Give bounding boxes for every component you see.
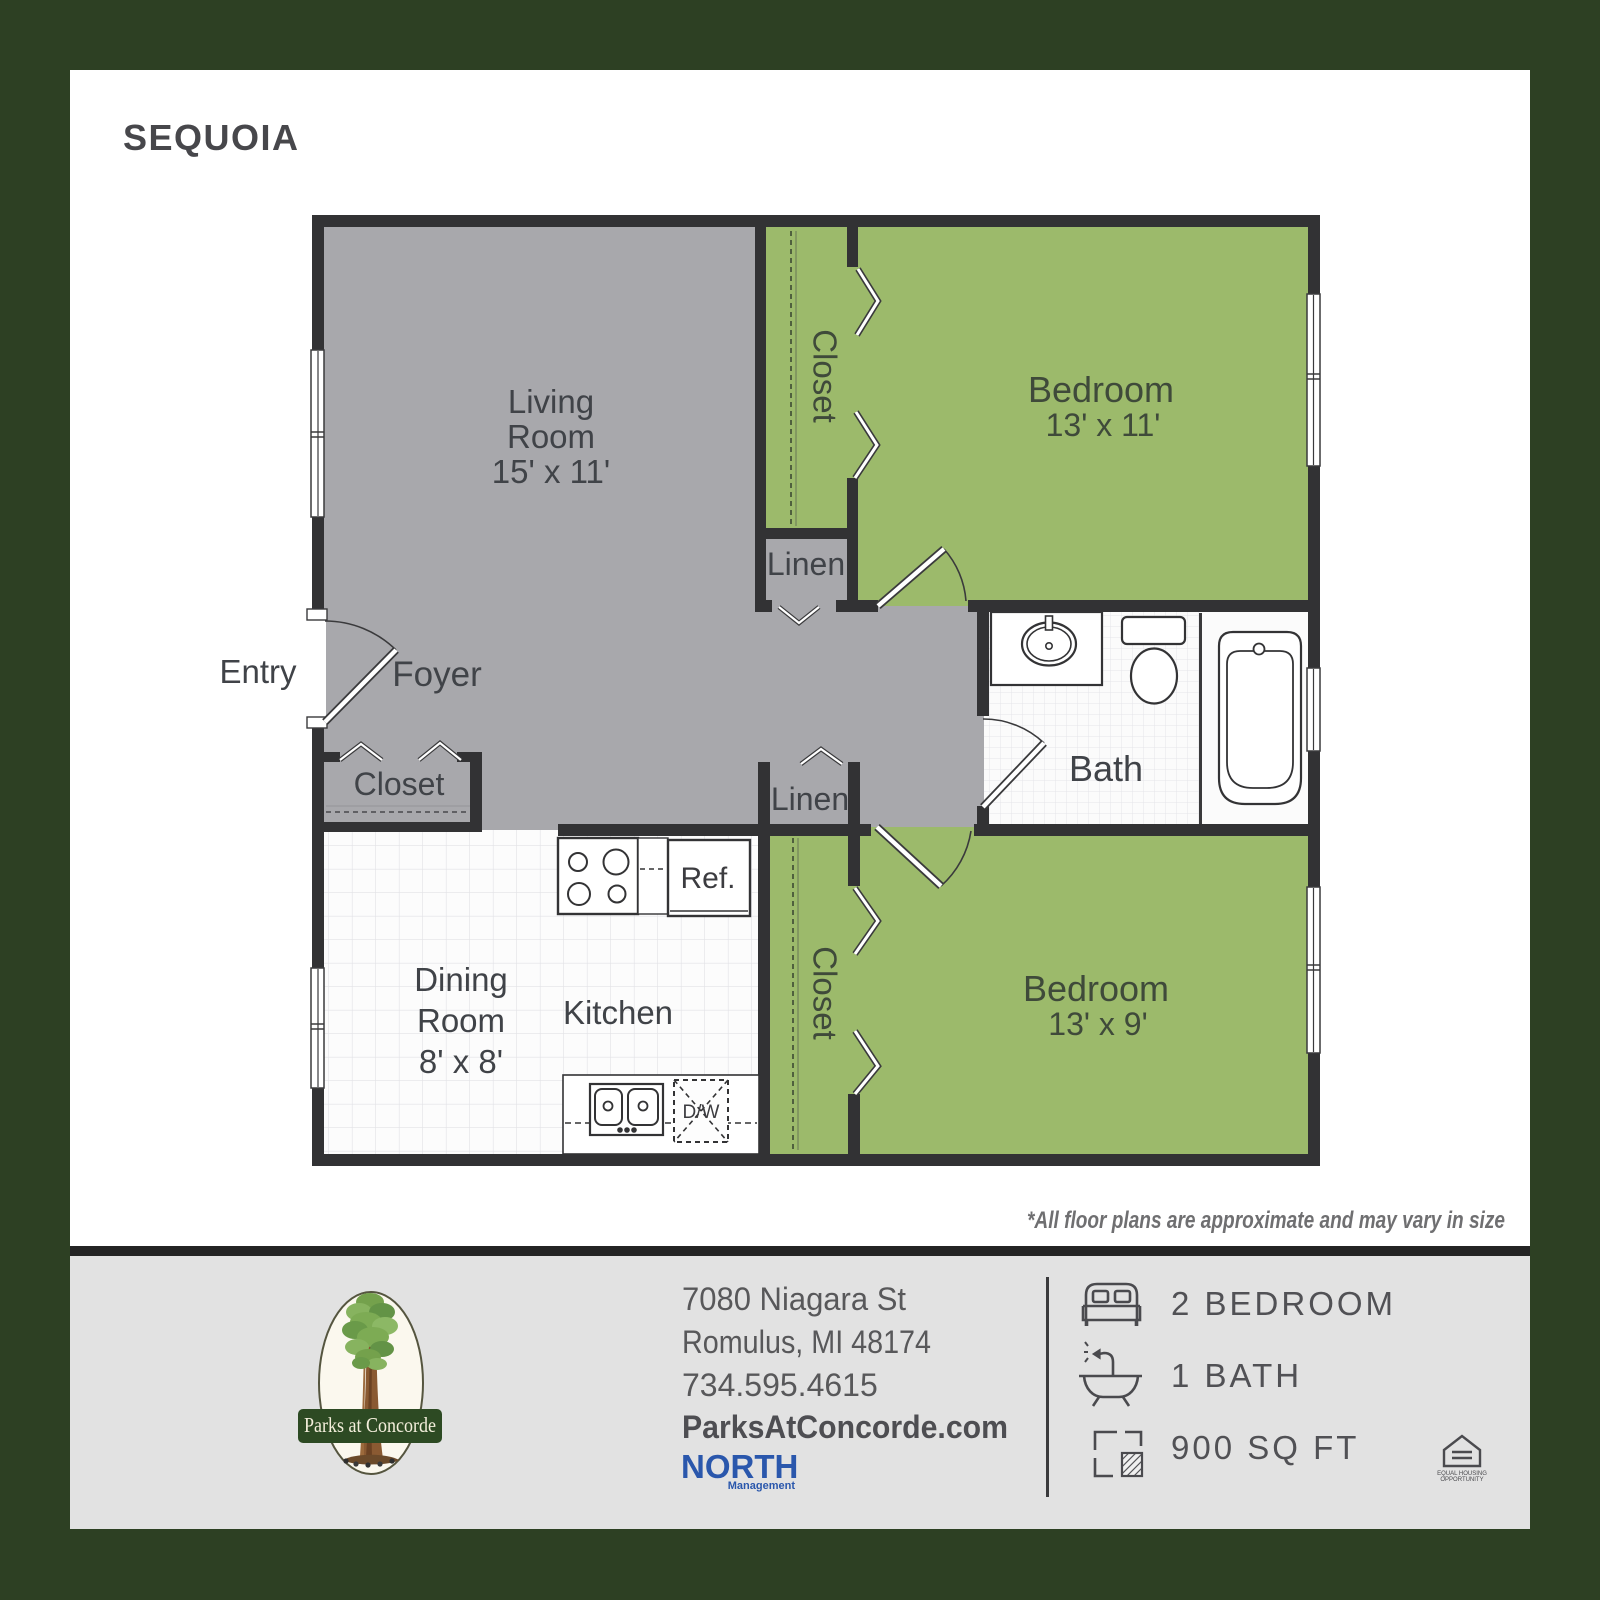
- svg-text:Ref.: Ref.: [680, 862, 735, 895]
- svg-text:2 BEDROOM: 2 BEDROOM: [1171, 1285, 1396, 1322]
- svg-text:Foyer: Foyer: [392, 655, 482, 694]
- svg-text:Kitchen: Kitchen: [563, 994, 673, 1031]
- svg-text:Linen: Linen: [771, 781, 849, 817]
- svg-text:13' x 11': 13' x 11': [1046, 407, 1161, 443]
- svg-text:Closet: Closet: [806, 329, 843, 423]
- svg-text:Closet: Closet: [354, 766, 445, 802]
- svg-text:OPPORTUNITY: OPPORTUNITY: [1440, 1477, 1483, 1483]
- svg-text:13' x 9': 13' x 9': [1048, 1006, 1147, 1042]
- svg-text:900 SQ FT: 900 SQ FT: [1171, 1429, 1359, 1466]
- svg-text:Bedroom: Bedroom: [1028, 369, 1174, 410]
- svg-text:ParksAtConcorde.com: ParksAtConcorde.com: [682, 1409, 1008, 1445]
- svg-text:Bath: Bath: [1069, 748, 1143, 789]
- svg-text:*All floor plans are approxima: *All floor plans are approximate and may…: [1027, 1207, 1505, 1234]
- svg-text:Romulus, MI 48174: Romulus, MI 48174: [682, 1324, 931, 1360]
- svg-text:7080 Niagara St: 7080 Niagara St: [682, 1281, 906, 1317]
- svg-text:Linen: Linen: [767, 546, 845, 582]
- svg-text:D/W: D/W: [683, 1102, 720, 1123]
- svg-text:Management: Management: [728, 1480, 796, 1492]
- svg-text:Bedroom: Bedroom: [1023, 968, 1169, 1009]
- svg-text:SEQUOIA: SEQUOIA: [123, 117, 300, 158]
- svg-text:15' x 11': 15' x 11': [492, 453, 610, 490]
- svg-text:734.595.4615: 734.595.4615: [682, 1367, 878, 1403]
- svg-text:Room: Room: [417, 1002, 505, 1039]
- svg-text:Room: Room: [507, 418, 595, 455]
- svg-text:1 BATH: 1 BATH: [1171, 1357, 1302, 1394]
- svg-text:Closet: Closet: [806, 946, 843, 1040]
- svg-text:Parks at Concorde: Parks at Concorde: [304, 1413, 436, 1437]
- svg-text:Dining: Dining: [414, 961, 508, 998]
- svg-text:Entry: Entry: [219, 653, 297, 690]
- svg-text:Living: Living: [508, 383, 594, 420]
- svg-text:8' x 8': 8' x 8': [419, 1043, 503, 1080]
